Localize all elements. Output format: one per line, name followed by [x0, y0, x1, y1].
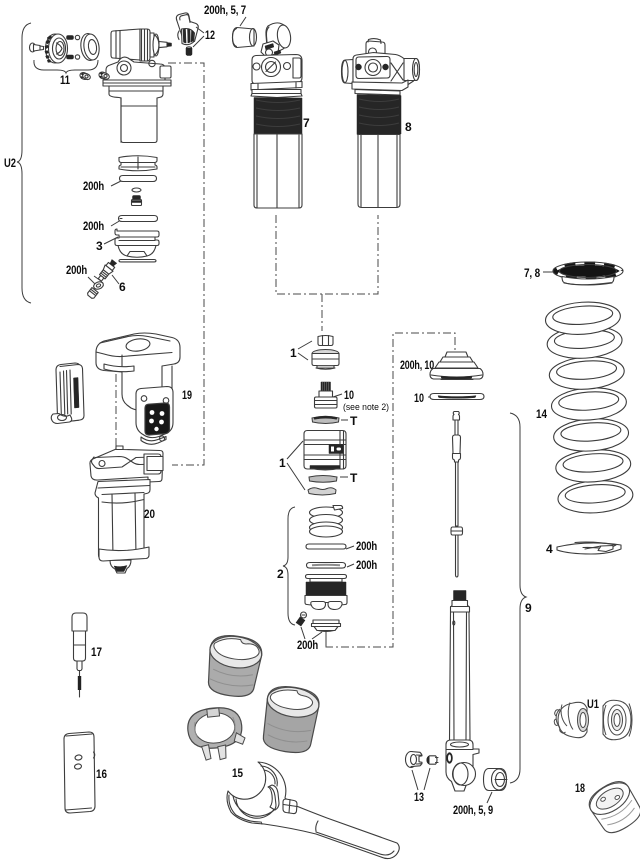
svg-text:12: 12	[205, 28, 215, 42]
svg-text:T: T	[350, 414, 358, 428]
svg-text:200h: 200h	[83, 221, 104, 233]
svg-text:15: 15	[232, 766, 243, 780]
svg-text:7, 8: 7, 8	[524, 268, 541, 280]
svg-text:T: T	[350, 471, 358, 485]
svg-text:U2: U2	[4, 156, 16, 170]
svg-text:11: 11	[60, 73, 70, 87]
svg-text:17: 17	[91, 645, 102, 659]
svg-text:4: 4	[546, 542, 553, 556]
svg-text:16: 16	[96, 767, 107, 781]
svg-text:200h, 5, 9: 200h, 5, 9	[453, 805, 493, 817]
svg-text:10: 10	[414, 391, 424, 405]
svg-text:8: 8	[405, 120, 412, 134]
svg-text:200h, 10: 200h, 10	[400, 360, 434, 372]
svg-text:200h, 5, 7: 200h, 5, 7	[204, 5, 246, 17]
svg-text:1: 1	[279, 456, 286, 470]
svg-text:U1: U1	[587, 697, 599, 711]
svg-text:10: 10	[344, 388, 354, 402]
svg-text:20: 20	[144, 507, 155, 521]
svg-text:(see note 2): (see note 2)	[343, 402, 389, 412]
svg-text:9: 9	[525, 601, 532, 615]
svg-text:200h: 200h	[297, 640, 318, 652]
svg-text:6: 6	[119, 280, 126, 294]
svg-text:2: 2	[277, 567, 284, 581]
svg-text:7: 7	[303, 116, 310, 130]
svg-text:14: 14	[536, 407, 547, 421]
svg-text:19: 19	[182, 388, 192, 402]
svg-text:1: 1	[290, 346, 297, 360]
svg-text:3: 3	[96, 239, 103, 253]
svg-text:200h: 200h	[356, 560, 377, 572]
svg-text:13: 13	[414, 790, 424, 804]
svg-text:200h: 200h	[83, 181, 104, 193]
svg-text:200h: 200h	[66, 265, 87, 277]
svg-text:200h: 200h	[356, 541, 377, 553]
svg-text:18: 18	[575, 781, 585, 795]
